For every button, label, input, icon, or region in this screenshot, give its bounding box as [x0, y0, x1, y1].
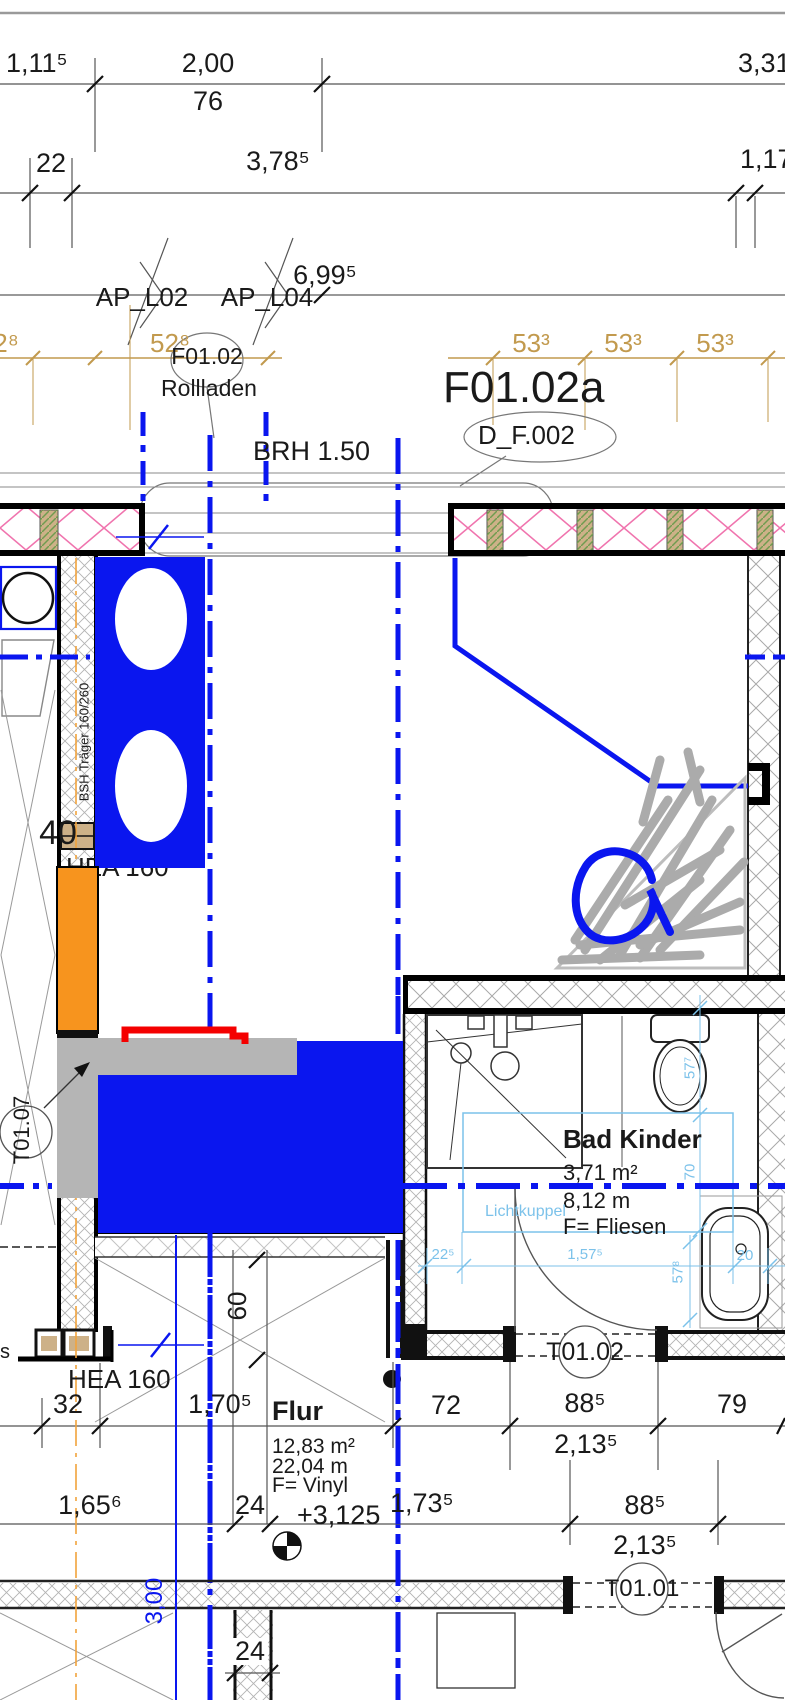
furniture-blue-block-1 [95, 557, 205, 868]
shower [427, 1015, 582, 1168]
dim-1705: 1,70⁵ [188, 1391, 252, 1418]
bottom-closet-rect [437, 1613, 515, 1688]
dim-72: 72 [431, 1392, 461, 1419]
floor-plan-canvas: HEA 160 [0, 0, 785, 1700]
cdim-20: 20 [737, 1248, 754, 1263]
level-value: +3,125 [297, 1502, 380, 1529]
dim-2135a: 2,13⁵ [554, 1431, 618, 1458]
right-wall [747, 556, 781, 977]
cdim-225: 22⁵ [432, 1247, 455, 1262]
label-ap-l04: AP_L04 [221, 284, 314, 310]
dim-200: 2,00 [182, 50, 235, 77]
dim-1656: 1,65⁶ [58, 1492, 122, 1519]
dim-117: 1,17 [740, 146, 785, 173]
dim-gold-533b: 53³ [604, 330, 642, 356]
dim-60: 60 [224, 1292, 250, 1321]
bath-perimeter: 8,12 m [563, 1190, 630, 1212]
flur-floor: F= Vinyl [272, 1475, 348, 1496]
room-name-flur: Flur [272, 1398, 323, 1425]
dim-111: 1,11⁵ [6, 50, 68, 77]
top-wall-left [0, 503, 145, 556]
orange-wall-highlight [57, 867, 98, 1033]
appliance-outline [2, 640, 54, 716]
dim-2135b: 2,13⁵ [613, 1532, 677, 1559]
dim-gold-533a: 53³ [512, 330, 550, 356]
dim-24b: 24 [232, 1638, 268, 1665]
window-sill-label: BRH 1.50 [253, 438, 370, 465]
door-t0101-swing [716, 1612, 784, 1698]
bathroom-top-wall [403, 975, 785, 1014]
door-tag-t0101: T01.01 [605, 1577, 680, 1601]
bottom-left-cross-brace [0, 1613, 173, 1700]
dim-32: 32 [53, 1391, 83, 1418]
dim-gold-533c: 53³ [696, 330, 734, 356]
cdim-70: 70 [683, 1164, 698, 1181]
bath-area: 3,71 m² [563, 1162, 638, 1184]
label-ap-l02: AP_L02 [96, 284, 189, 310]
dim-1735: 1,73⁵ [390, 1490, 454, 1517]
top-dimension-ticks [22, 76, 763, 303]
beam-hea-label: HEA 160 [68, 1366, 171, 1392]
dim-24a: 24 [235, 1492, 265, 1519]
door-tag-t0102: T01.02 [546, 1340, 624, 1365]
text-fragment: s [0, 1342, 10, 1362]
room-name-bad-kinder: Bad Kinder [563, 1126, 702, 1152]
dim-gold-28: 2⁸ [0, 330, 19, 356]
axis-dim-300: 3,00 [143, 1578, 167, 1625]
door-tag-t0107: T01.07 [11, 1096, 33, 1165]
level-marker [273, 1532, 301, 1560]
door-ref-df002: D_F.002 [478, 422, 575, 448]
dim-79: 79 [717, 1391, 747, 1418]
window-tag-f0102a: F01.02a [443, 366, 604, 410]
dim-22: 22 [36, 150, 66, 177]
washing-machine [1, 567, 56, 629]
dim-885b: 88⁵ [624, 1492, 665, 1519]
blue-room-line [455, 558, 748, 786]
window-tag-f0102: F01.02 [171, 345, 243, 368]
bottom-dimension-lines [0, 1250, 785, 1673]
beam-bsh-label: BSH Träger 160/260 [78, 683, 91, 802]
dim-885a: 88⁵ [564, 1390, 605, 1417]
bath-floor: F= Fliesen [563, 1216, 666, 1238]
dim-40: 40 [39, 816, 77, 850]
window-shutter-label: Rollladen [161, 377, 257, 400]
dim-331: 3,31 [738, 50, 785, 77]
gold-dimension-row [0, 305, 785, 430]
skylight-label: Lichtkuppel [485, 1204, 566, 1220]
dim-3785: 3,78⁵ [246, 148, 310, 175]
top-wall-right [448, 503, 785, 556]
cdim-577: 57⁷ [683, 1057, 698, 1079]
flur-area: 12,83 m² [272, 1436, 355, 1457]
cdim-1575: 1,57⁵ [567, 1247, 602, 1262]
dim-76: 76 [193, 88, 223, 115]
cdim-578: 57⁸ [671, 1260, 686, 1283]
plan-linework: HEA 160 [0, 0, 785, 1700]
